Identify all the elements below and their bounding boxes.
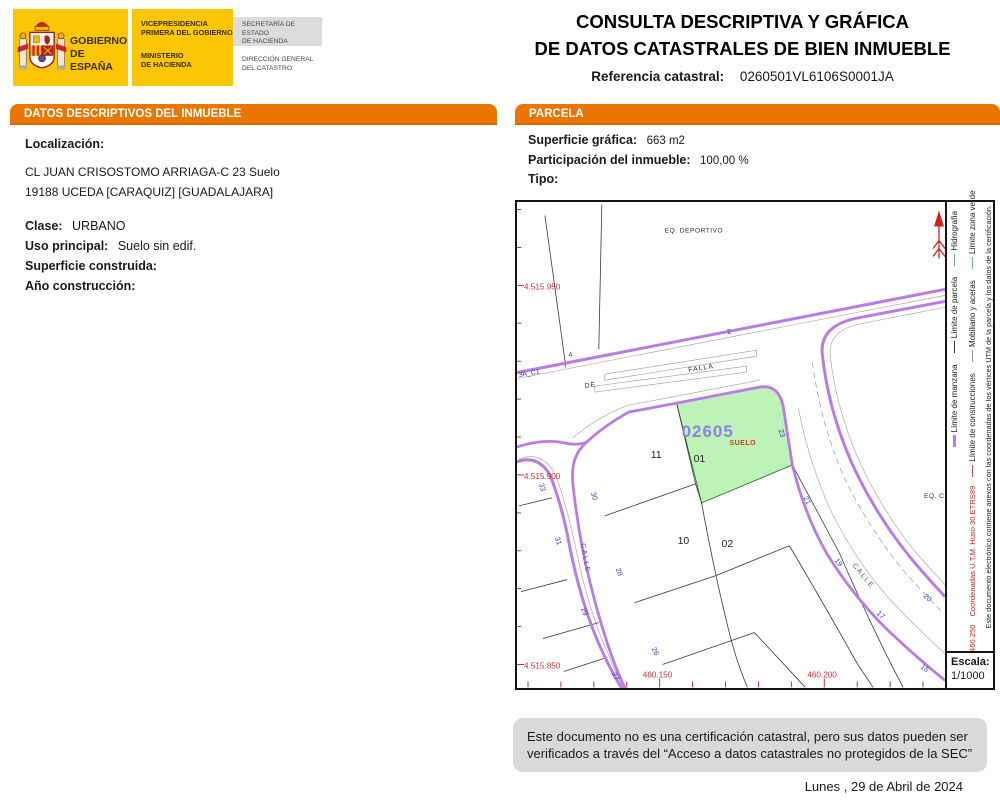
cadastral-reference: Referencia catastral: 0260501VL6106S0001… — [500, 69, 985, 84]
uso-label: Uso principal: — [25, 239, 108, 253]
reference-value: 0260501VL6106S0001JA — [740, 69, 894, 84]
spain-coat-of-arms-icon — [16, 14, 68, 82]
government-logo: GOBIERNO DE ESPAÑA VICEPRESIDENCIA PRIME… — [13, 9, 322, 86]
manzana-line-swatch — [953, 435, 956, 447]
house-number-26: 26 — [650, 646, 662, 657]
title-line-2: DE DATOS CATASTRALES DE BIEN INMUEBLE — [500, 35, 985, 62]
vicepresidencia-text: VICEPRESIDENCIA PRIMERA DEL GOBIERNO — [141, 19, 233, 37]
coord-label-y3: 4.515.850 — [524, 661, 561, 670]
neighbor-parcel-02: 02 — [722, 539, 734, 550]
scale-label: Escala: — [951, 655, 993, 669]
legend-row-2-items: Límite de construcciones Mobiliario y ac… — [968, 190, 977, 485]
area-label-eq-deportivo: EQ. DEPORTIVO — [665, 227, 723, 234]
house-number-15: 15 — [919, 662, 931, 674]
area-label-eq-c: EQ. C — [924, 493, 944, 500]
legend-hidrografia: Hidrografía — [950, 211, 959, 266]
superficie-grafica-label: Superficie gráfica: — [528, 133, 637, 147]
gobierno-espana-text: GOBIERNO DE ESPAÑA — [70, 35, 128, 74]
house-number-30: 30 — [589, 491, 600, 501]
legend-construcciones: Límite de construcciones — [968, 373, 977, 477]
street-name-calle-right: CALLE — [851, 563, 876, 591]
cadastral-document: GOBIERNO DE ESPAÑA VICEPRESIDENCIA PRIME… — [0, 0, 1000, 800]
secretaria-estado-text: SECRETARÍA DE ESTADO DE HACIENDA — [233, 17, 322, 46]
mobiliario-line-swatch — [972, 350, 973, 362]
tipo-label: Tipo: — [528, 170, 749, 189]
localizacion-label: Localización: — [25, 134, 280, 154]
gobierno-line2: DE ESPAÑA — [70, 48, 128, 74]
zona-verde-line-swatch — [972, 257, 973, 269]
parcel-data-panel: Superficie gráfica: 663 m2 Participación… — [528, 131, 749, 189]
address-line-2: 19188 UCEDA [CARAQUIZ] [GUADALAJARA] — [25, 182, 280, 202]
parcel-sub-label: 01 — [694, 454, 706, 465]
house-number-31: 31 — [553, 536, 564, 546]
utm-coordinates-note: 460.250Coordenadas U.T.M. Huso 30 ETRS89 — [968, 486, 977, 652]
corner-reference-label: 3A_C1 — [518, 369, 540, 380]
superficie-grafica-value: 663 m2 — [647, 135, 685, 147]
logo-coat-of-arms-box: GOBIERNO DE ESPAÑA — [13, 9, 128, 86]
coord-label-x1: 460.150 — [643, 670, 673, 679]
construcciones-line-swatch — [972, 465, 973, 477]
secretaria-box: SECRETARÍA DE ESTADO DE HACIENDA DIRECCI… — [233, 9, 322, 86]
neighbor-parcel-10: 10 — [678, 536, 690, 547]
participacion-value: 100,00 % — [700, 155, 749, 167]
superficie-construida-label: Superficie construida: — [25, 256, 280, 276]
ministerio-text: MINISTERIO DE HACIENDA — [141, 51, 233, 69]
hidrografia-line-swatch — [954, 254, 955, 266]
north-arrow-icon — [933, 211, 945, 259]
clase-row: Clase: URBANO — [25, 216, 280, 236]
neighbor-parcel-11: 11 — [651, 450, 662, 461]
clase-label: Clase: — [25, 219, 63, 233]
clase-value: URBANO — [72, 219, 125, 233]
title-line-1: CONSULTA DESCRIPTIVA Y GRÁFICA — [500, 8, 985, 35]
house-number-33: 33 — [537, 482, 548, 492]
uso-value: Suelo sin edif. — [118, 239, 197, 253]
legend-row-1: Límite de manzana Límite de parcela Hidr… — [948, 203, 959, 652]
street-marking-strips — [595, 350, 757, 392]
scale-box: Escala: 1/1000 — [947, 651, 993, 688]
legend-row-2: 460.250Coordenadas U.T.M. Huso 30 ETRS89… — [968, 203, 977, 652]
cadastral-map: EQ. DEPORTIVO EQ. C DE FALLA CALLE CALLE… — [515, 200, 995, 690]
coord-label-y2: 4.515.900 — [524, 472, 561, 481]
uso-row: Uso principal: Suelo sin edif. — [25, 236, 280, 256]
ministry-box: VICEPRESIDENCIA PRIMERA DEL GOBIERNO MIN… — [132, 9, 233, 86]
parcel-code-label: 02605 — [682, 422, 734, 441]
legend-mobiliario: Mobiliario y aceras — [968, 280, 977, 362]
address-line-1: CL JUAN CRISOSTOMO ARRIAGA-C 23 Suelo — [25, 162, 280, 182]
property-data-panel: Localización: CL JUAN CRISOSTOMO ARRIAGA… — [25, 134, 280, 296]
house-number-28: 28 — [614, 567, 625, 577]
coord-label-x3: 460.250 — [968, 625, 977, 652]
legend-manzana: Límite de manzana — [950, 364, 959, 447]
parcel-map-drawing: EQ. DEPORTIVO EQ. C DE FALLA CALLE CALLE… — [517, 202, 945, 688]
section-header-parcela: PARCELA — [515, 104, 1000, 125]
document-title: CONSULTA DESCRIPTIVA Y GRÁFICA DE DATOS … — [500, 8, 985, 84]
disclaimer-box: Este documento no es una certificación c… — [513, 718, 987, 772]
section-header-datos: DATOS DESCRIPTIVOS DEL INMUEBLE — [10, 104, 497, 125]
house-number-2: 2 — [726, 327, 732, 337]
coord-label-y1: 4.515.950 — [524, 282, 561, 291]
coord-label-x2: 460.200 — [807, 670, 837, 679]
map-legend-sidebar: Límite de manzana Límite de parcela Hidr… — [945, 202, 993, 688]
scale-value: 1/1000 — [951, 669, 993, 683]
document-date: Lunes , 29 de Abril de 2024 — [805, 779, 963, 794]
reference-label: Referencia catastral: — [591, 69, 724, 84]
annex-note: Este documento electrónico contiene anex… — [985, 203, 993, 652]
legend-zona-verde: Límite zona verde — [968, 190, 977, 269]
house-number-4: 4 — [568, 350, 574, 360]
parcel-use-label: SUELO — [730, 440, 757, 447]
direccion-catastro-text: DIRECCIÓN GENERAL DEL CATASTRO — [233, 56, 313, 73]
parcela-line-swatch — [954, 341, 955, 353]
participacion-label: Participación del inmueble: — [528, 153, 691, 167]
rotated-legend-block: Límite de manzana Límite de parcela Hidr… — [948, 203, 993, 652]
street-name-falla: FALLA — [688, 363, 715, 374]
gobierno-line1: GOBIERNO — [70, 35, 128, 48]
anio-construccion-label: Año construcción: — [25, 276, 280, 296]
superficie-grafica-row: Superficie gráfica: 663 m2 — [528, 131, 749, 151]
legend-parcela: Límite de parcela — [950, 277, 959, 353]
participacion-row: Participación del inmueble: 100,00 % — [528, 151, 749, 171]
